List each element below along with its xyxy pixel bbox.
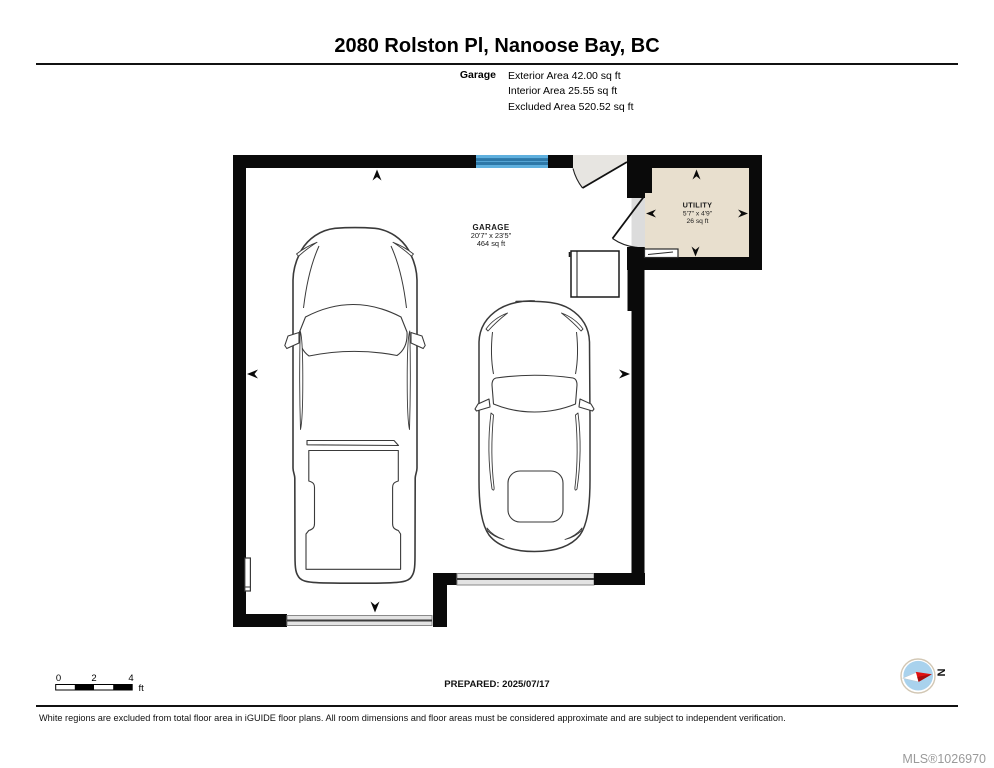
svg-text:N: N [935, 669, 947, 677]
svg-text:5'7" x 4'9": 5'7" x 4'9" [683, 210, 713, 217]
svg-text:464 sq ft: 464 sq ft [477, 239, 505, 248]
svg-text:UTILITY: UTILITY [683, 201, 713, 210]
svg-text:26 sq ft: 26 sq ft [687, 218, 709, 225]
